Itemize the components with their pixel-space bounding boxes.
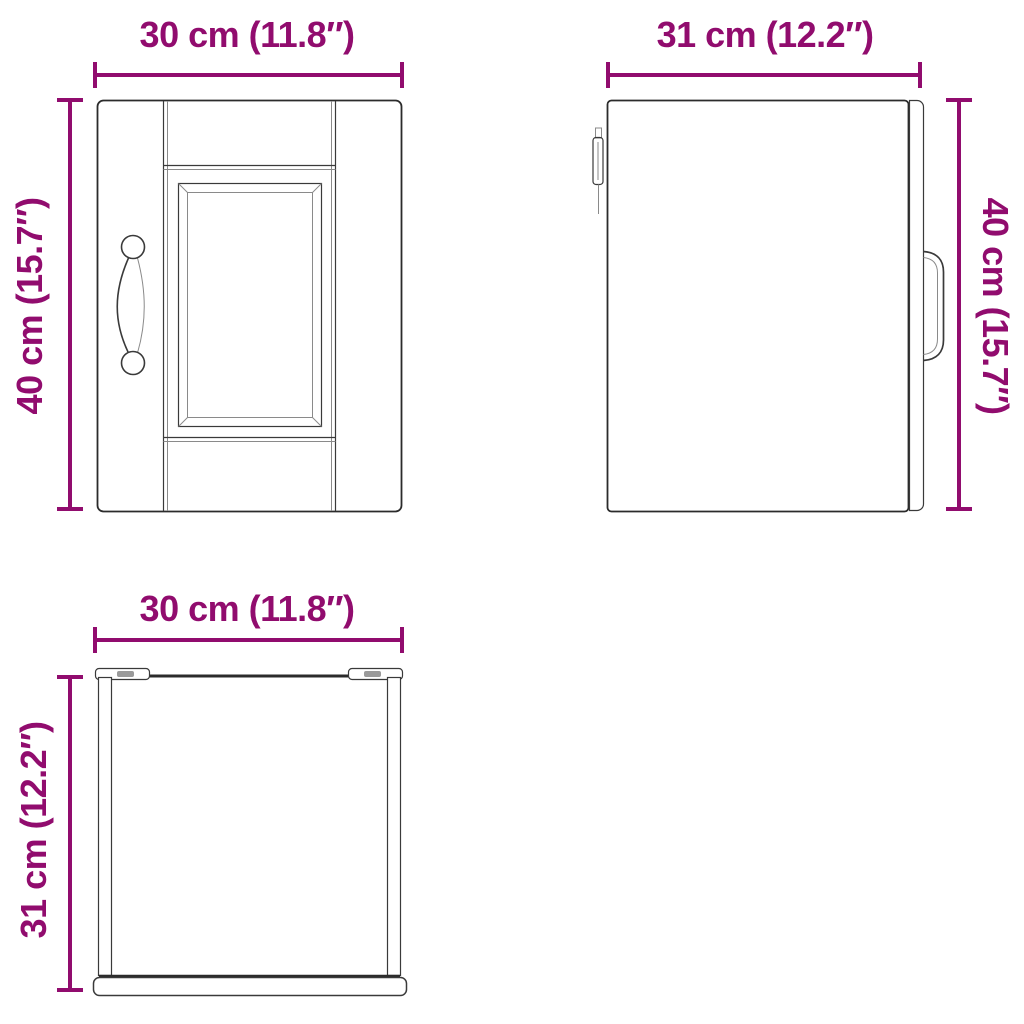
top-left-side-wall: [99, 678, 112, 976]
side-door-handle: [924, 252, 944, 361]
side-view-drawing: [593, 101, 944, 512]
side-hinge-detail: [593, 128, 603, 214]
top-door-slab: [94, 978, 407, 996]
side-door-front: [910, 101, 924, 511]
side-cabinet-body: [608, 101, 909, 512]
front-handle-top-knob: [122, 236, 145, 259]
front-cabinet-body: [98, 101, 402, 512]
front-view-drawing: [98, 101, 402, 512]
top-view-drawing: [94, 669, 407, 996]
product-dimension-diagram: 30 cm (11.8″) 40 cm (15.7″) 31 cm (12.2″…: [0, 0, 1024, 1024]
front-handle-bottom-knob: [122, 352, 145, 375]
cabinet-line-art: [0, 0, 1024, 1024]
top-right-side-wall: [388, 678, 401, 976]
